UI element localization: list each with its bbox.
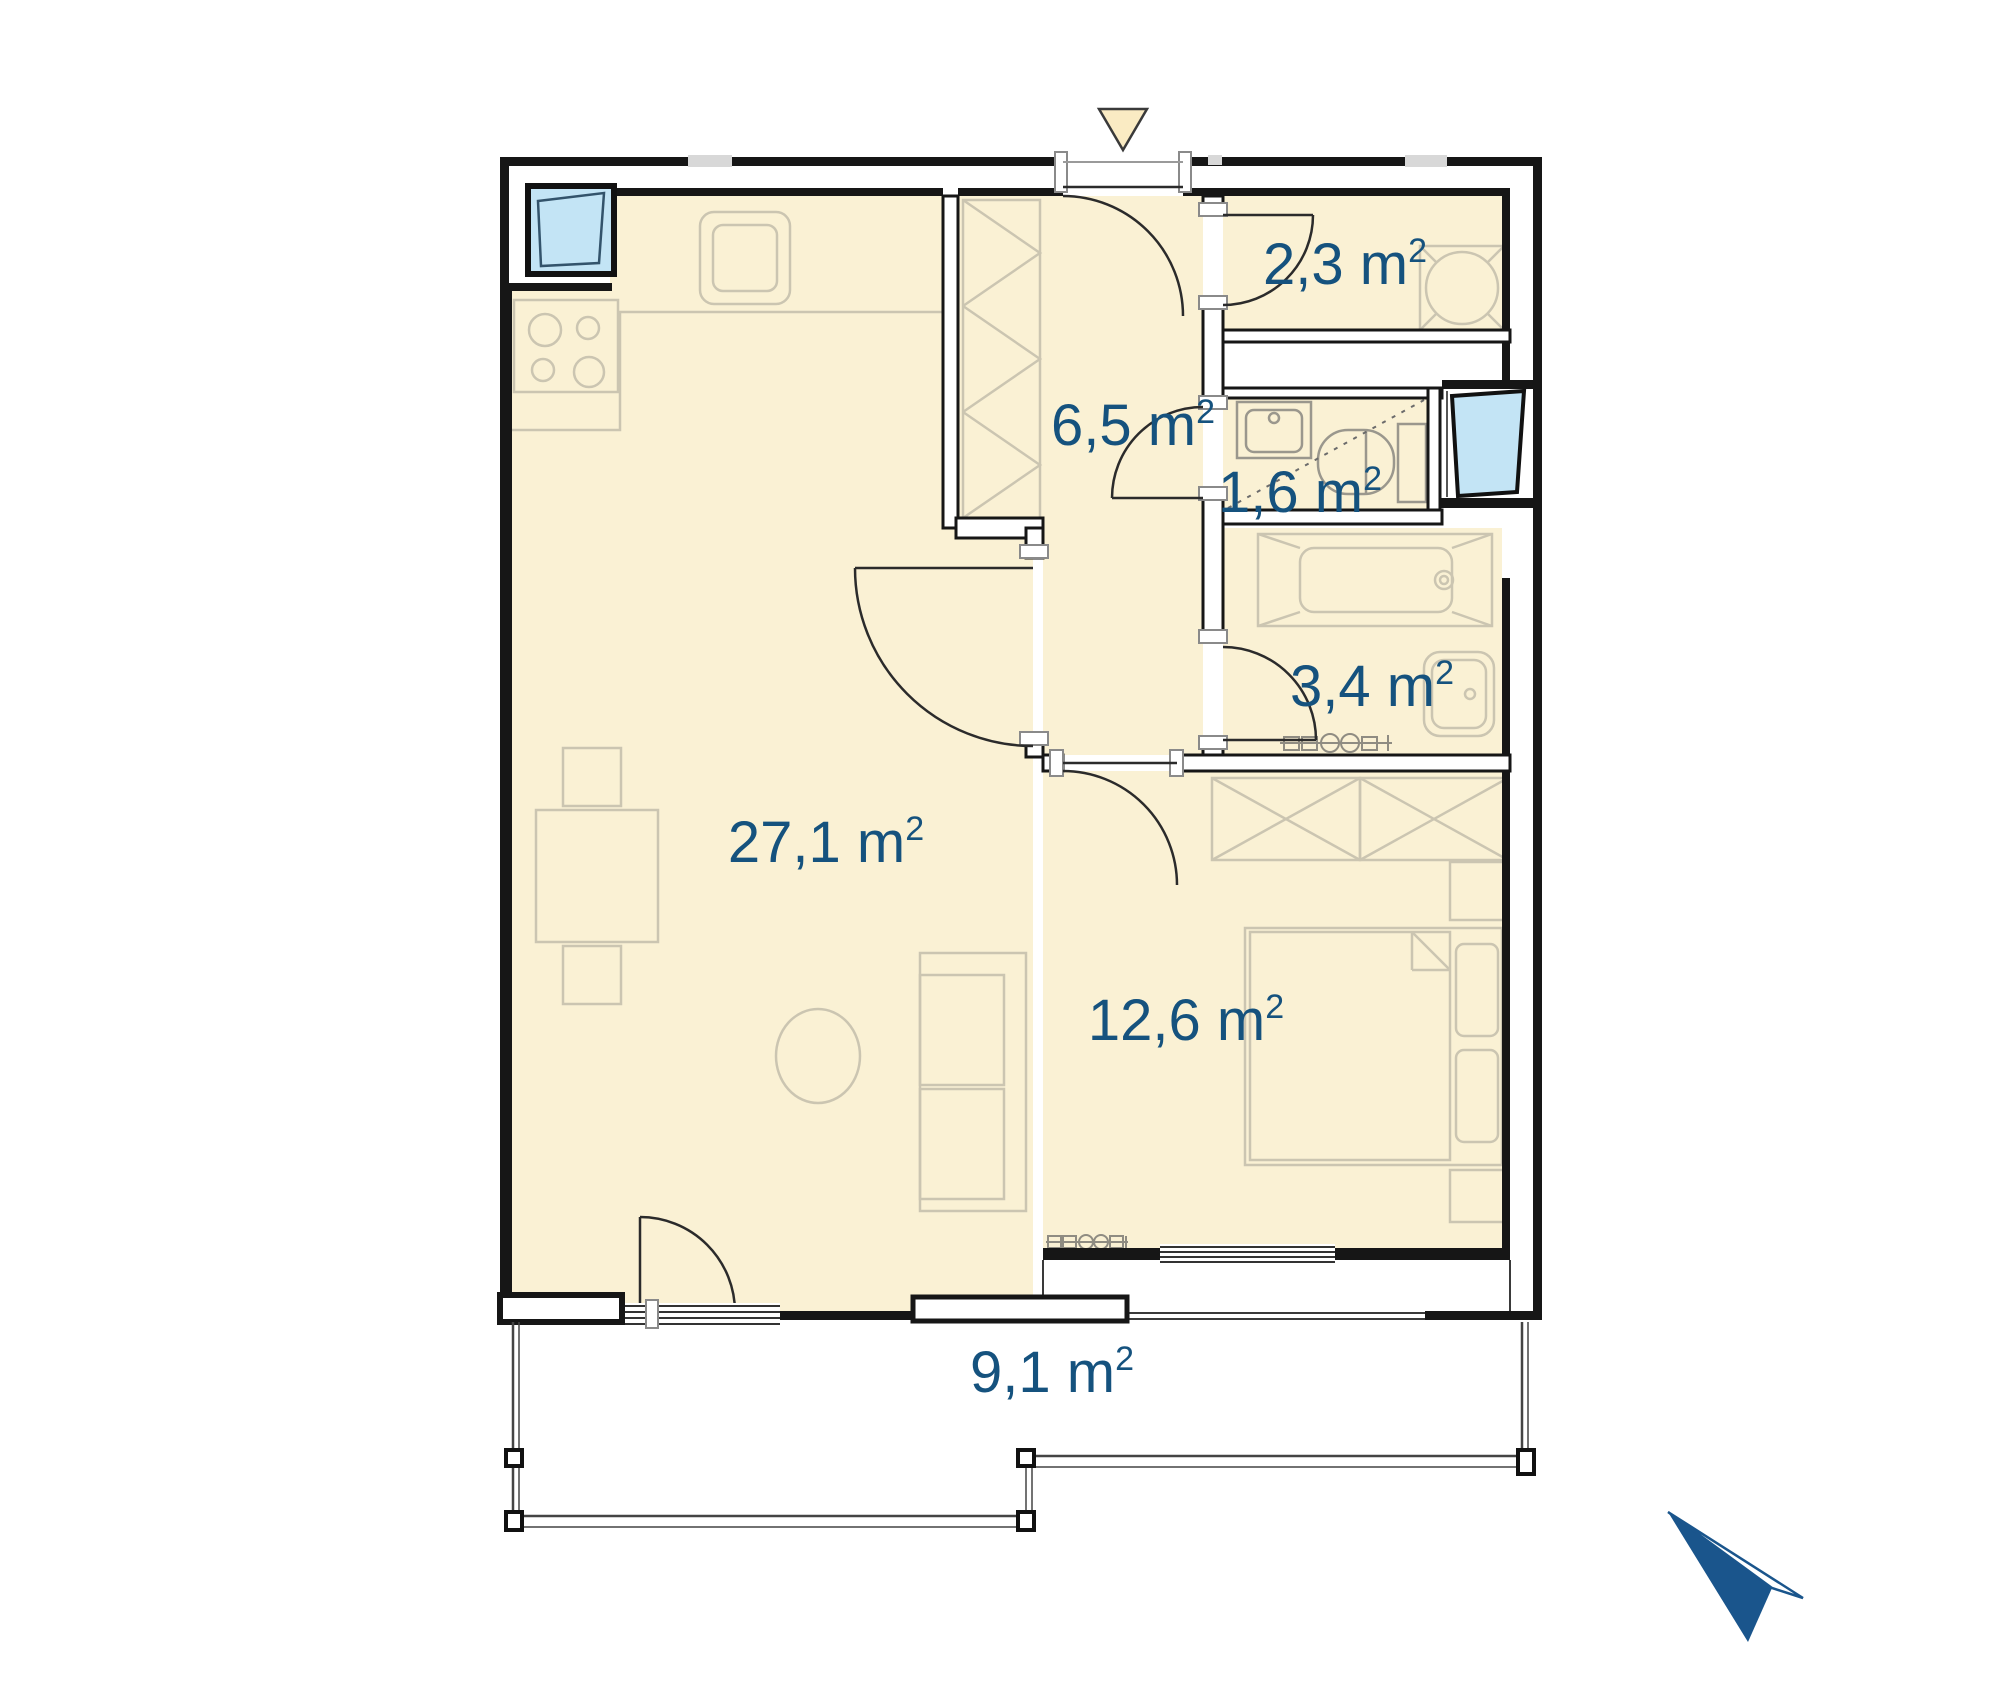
- entrance-triangle-icon: [1099, 109, 1147, 150]
- wall-bedroom-bottom: [1335, 1248, 1510, 1260]
- right-window-icon: [1452, 391, 1524, 496]
- window-stub: [1442, 380, 1538, 389]
- wall-inner-top-storage: [1203, 188, 1510, 196]
- label-living-kitchen: 27,1 m2: [728, 810, 924, 875]
- label-hallway: 6,5 m2: [1051, 393, 1215, 458]
- wall-inner-top-kitchen: [610, 188, 943, 196]
- radiator-bathroom: [1280, 734, 1392, 752]
- wall-inner-top-hall: [958, 188, 1063, 196]
- label-balcony: 9,1 m2: [970, 1340, 1134, 1405]
- room-fills: [510, 192, 1510, 1311]
- window-stub: [1428, 498, 1538, 508]
- wall-storage-bottom: [1223, 330, 1510, 342]
- wall-bedroom-bottom: [1043, 1248, 1160, 1260]
- pier-left: [500, 1295, 622, 1322]
- wall-inner-right: [1502, 578, 1510, 1260]
- label-bathroom: 3,4 m2: [1290, 654, 1454, 719]
- wall-inner-right: [1502, 188, 1510, 386]
- wall-hall-bedroom: [1177, 755, 1510, 771]
- wall-kitchen-hall: [943, 196, 958, 528]
- label-bedroom: 12,6 m2: [1088, 988, 1284, 1053]
- north-arrow-logo-icon: [1668, 1512, 1803, 1642]
- label-wc: 1,6 m2: [1218, 460, 1382, 525]
- label-storage: 2,3 m2: [1263, 232, 1427, 297]
- railing-posts: [506, 1450, 1534, 1530]
- wall-top: [500, 157, 1063, 166]
- wall-inner-left: [506, 283, 512, 1311]
- wall-wc-top: [1223, 388, 1442, 398]
- bedroom-balcony-window: [1160, 1244, 1335, 1264]
- wall-top: [1183, 157, 1542, 166]
- wall-bottom: [778, 1311, 918, 1320]
- pier-middle: [913, 1297, 1127, 1321]
- floor-plan-drawing: 27,1 m2 6,5 m2 2,3 m2 1,6 m2 3,4 m2 12,6…: [0, 0, 2000, 1700]
- room-bathroom: [1223, 528, 1502, 755]
- wall-alcove: [506, 283, 612, 291]
- floor-plan-page: 27,1 m2 6,5 m2 2,3 m2 1,6 m2 3,4 m2 12,6…: [0, 0, 2000, 1700]
- wall-wc-right: [1428, 388, 1440, 510]
- wall-bottom-right: [1425, 1311, 1542, 1320]
- wall-right: [1533, 157, 1542, 1320]
